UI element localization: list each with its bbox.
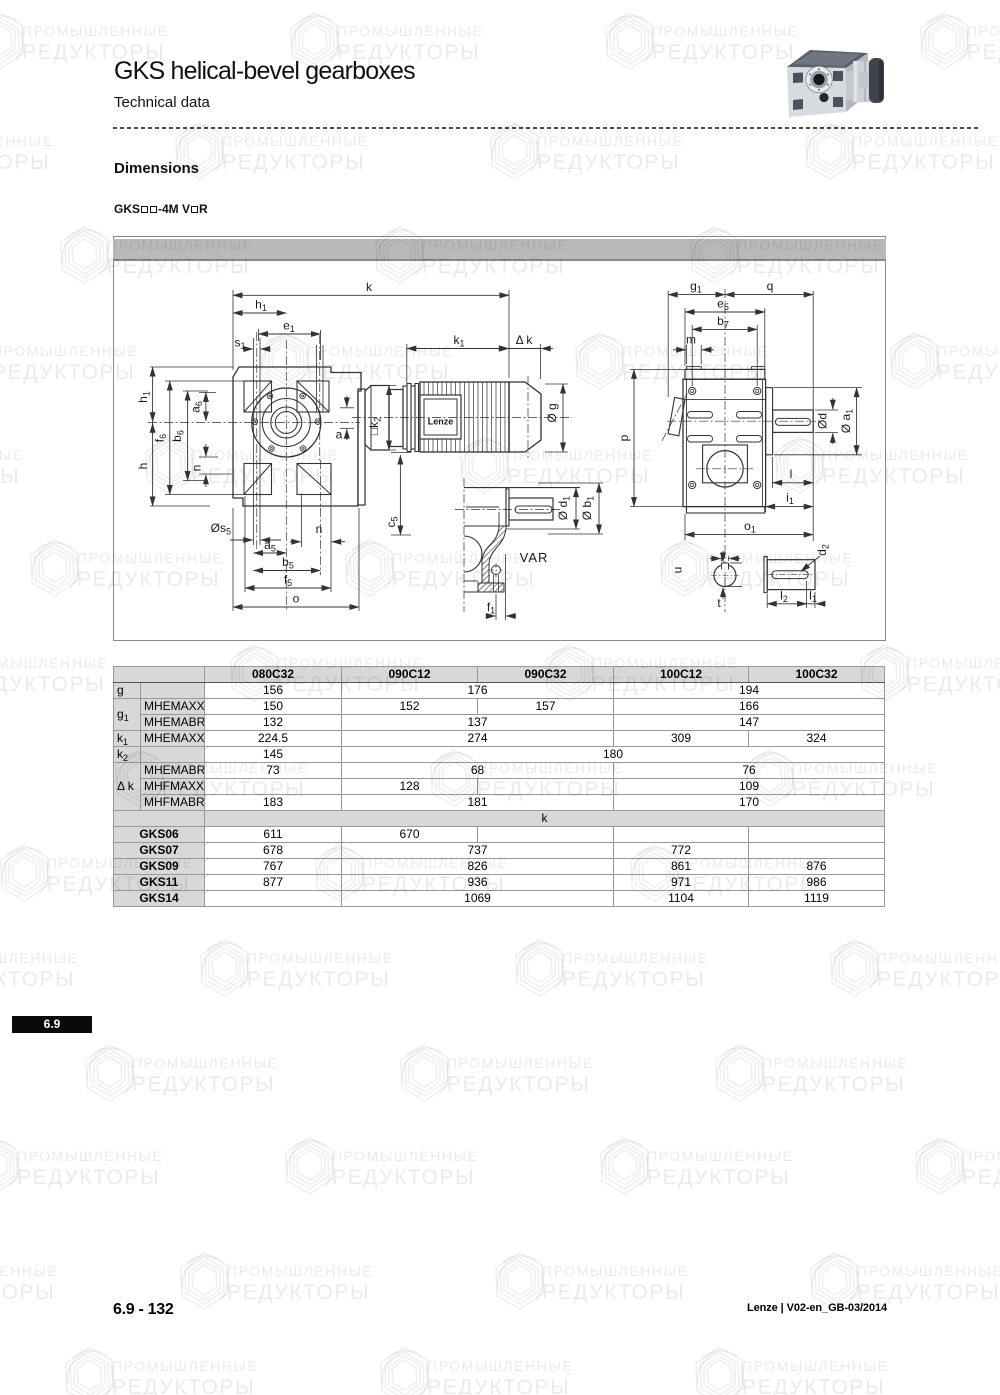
svg-text:d2: d2 xyxy=(815,544,831,556)
svg-text:g1: g1 xyxy=(690,279,702,295)
svg-text:l1: l1 xyxy=(809,589,817,605)
svg-text:VAR: VAR xyxy=(520,550,549,565)
svg-text:n: n xyxy=(190,465,204,472)
svg-text:Ød: Ød xyxy=(816,413,830,429)
svg-text:b7: b7 xyxy=(717,314,729,330)
svg-text:Lenze: Lenze xyxy=(428,417,454,427)
svg-text:n: n xyxy=(316,522,323,536)
svg-text:Δ k: Δ k xyxy=(516,333,534,347)
svg-text:Ø b1: Ø b1 xyxy=(580,496,596,520)
svg-text:e5: e5 xyxy=(717,297,729,313)
svg-text:b5: b5 xyxy=(282,555,294,571)
svg-text:□k2: □k2 xyxy=(367,417,383,435)
svg-text:o: o xyxy=(293,592,300,606)
svg-text:Ø d1: Ø d1 xyxy=(556,496,572,520)
svg-text:c5: c5 xyxy=(384,516,400,527)
svg-text:k: k xyxy=(366,280,373,294)
svg-text:f6: f6 xyxy=(153,434,169,442)
svg-text:a: a xyxy=(336,428,343,442)
svg-text:a6: a6 xyxy=(189,401,205,413)
svg-text:Øs5: Øs5 xyxy=(211,521,231,537)
svg-text:e1: e1 xyxy=(283,319,295,335)
svg-text:h1: h1 xyxy=(136,391,152,403)
svg-text:Ø a1: Ø a1 xyxy=(839,409,855,433)
svg-text:u: u xyxy=(671,567,685,574)
svg-text:Ø g: Ø g xyxy=(545,403,559,422)
svg-text:h1: h1 xyxy=(255,298,267,314)
svg-text:p: p xyxy=(617,434,631,441)
svg-text:q: q xyxy=(767,279,774,293)
svg-text:h: h xyxy=(136,463,150,470)
svg-text:b6: b6 xyxy=(170,430,186,442)
svg-text:s1: s1 xyxy=(234,336,245,352)
svg-text:t: t xyxy=(717,596,721,610)
svg-text:f5: f5 xyxy=(284,573,292,589)
svg-text:o1: o1 xyxy=(744,519,756,535)
svg-text:f1: f1 xyxy=(487,600,495,616)
svg-text:m: m xyxy=(686,333,696,347)
svg-text:k1: k1 xyxy=(453,333,464,349)
svg-text:l2: l2 xyxy=(780,589,788,605)
svg-text:i1: i1 xyxy=(786,491,794,507)
svg-text:l: l xyxy=(790,467,793,481)
